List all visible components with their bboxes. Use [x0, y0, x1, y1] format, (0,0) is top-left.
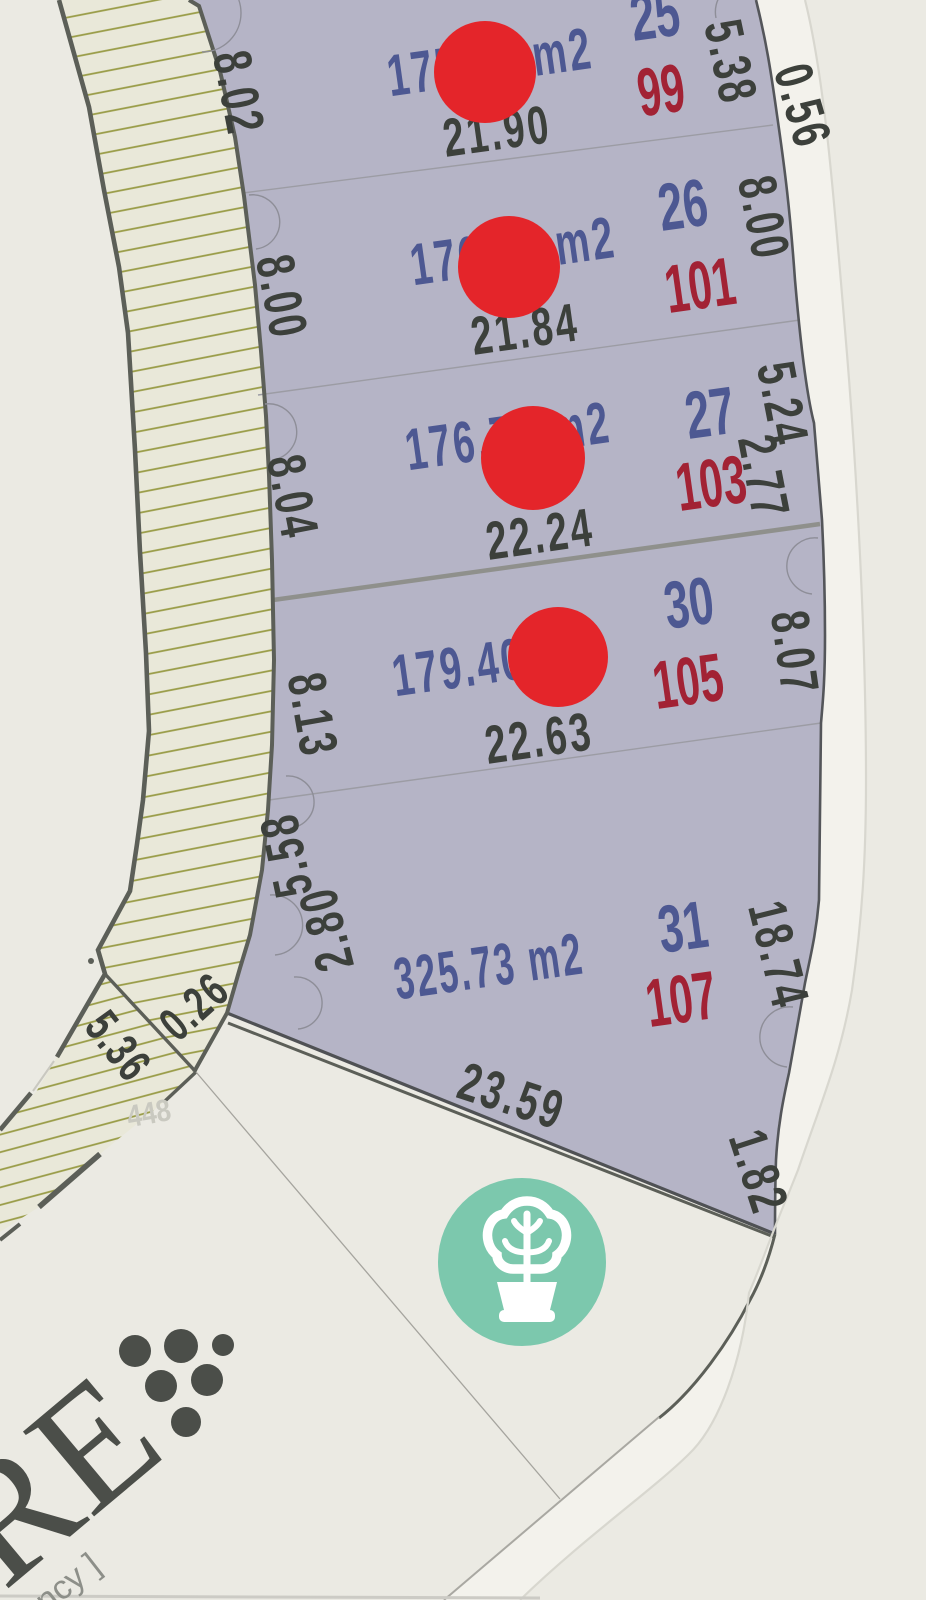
svg-text:30: 30	[659, 564, 718, 644]
svg-text:8.07: 8.07	[759, 607, 830, 699]
svg-text:31: 31	[653, 888, 712, 968]
svg-text:105: 105	[648, 639, 728, 724]
svg-text:25: 25	[625, 0, 684, 56]
svg-text:26: 26	[653, 166, 712, 246]
svg-text:107: 107	[641, 957, 721, 1042]
svg-text:101: 101	[660, 243, 740, 328]
